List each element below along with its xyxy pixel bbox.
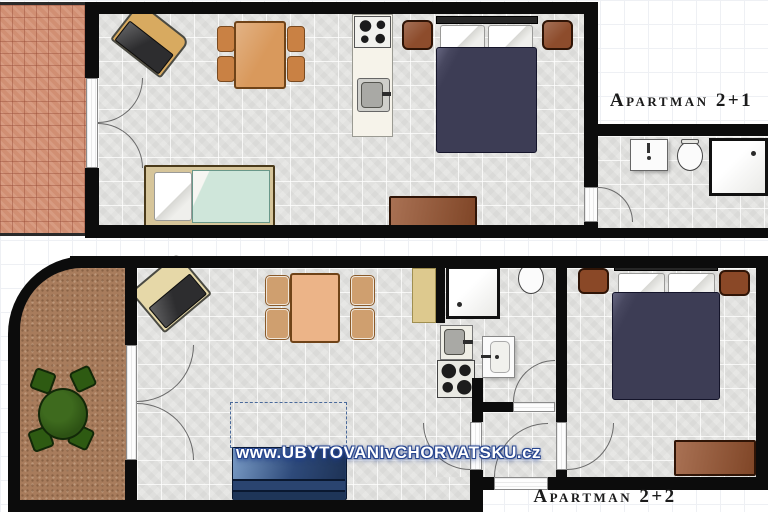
nightstand [542, 20, 573, 50]
garden-table [38, 388, 88, 440]
wall [70, 256, 768, 268]
sofa-fold [233, 479, 345, 490]
wall [470, 477, 494, 490]
wall [483, 402, 513, 412]
dining-chair [287, 26, 305, 52]
shower [709, 138, 768, 196]
double-bed [612, 262, 720, 402]
shower [446, 266, 500, 319]
faucet-knob [495, 355, 499, 359]
french-door [126, 345, 137, 460]
wall [85, 225, 598, 238]
sofa-bed-outline [230, 402, 347, 448]
floorplan-canvas: Apartman 2+1 [0, 0, 768, 512]
stove [437, 360, 475, 398]
faucet-icon [481, 355, 491, 358]
wall [125, 268, 137, 345]
nightstand [402, 20, 433, 50]
single-bed [144, 165, 275, 228]
wall [126, 500, 483, 512]
bathroom-door [584, 187, 598, 222]
wall [556, 470, 567, 482]
blanket [192, 170, 270, 223]
wall [85, 2, 99, 78]
faucet-icon [647, 143, 650, 153]
dining-chair [266, 309, 289, 339]
pillow [154, 172, 192, 221]
bed-duvet [612, 292, 720, 400]
toilet [677, 141, 703, 171]
wall [756, 268, 768, 477]
dining-table [290, 273, 340, 343]
bathroom-door [513, 402, 555, 412]
wash-basin [482, 336, 515, 378]
wall [85, 168, 99, 225]
dining-chair [287, 56, 305, 82]
bathroom-sink [630, 139, 668, 171]
apartment-2plus2-floorplan: Apartman 2+2 [0, 238, 768, 512]
stove [354, 16, 391, 48]
kitchen-sink [440, 325, 473, 360]
wall [556, 268, 567, 423]
dining-chair [217, 26, 235, 52]
toilet-tank [681, 139, 699, 144]
wall [85, 2, 598, 14]
nightstand [719, 270, 750, 296]
basin-bowl [490, 341, 510, 373]
dining-chair [351, 309, 374, 339]
sink-basin [361, 82, 383, 108]
dining-table [234, 21, 286, 89]
bed-duvet [436, 47, 537, 153]
faucet-icon [382, 92, 391, 96]
kitchen-sink [357, 78, 390, 112]
bed-headboard [436, 16, 538, 24]
watermark-text: www.UBYTOVANIvCHORVATSKU.cz [236, 443, 541, 463]
sink-basin [444, 329, 465, 355]
faucet-knob [647, 156, 651, 160]
dining-chair [266, 276, 289, 305]
bedroom-door [556, 422, 567, 470]
nightstand [578, 268, 609, 294]
wall [436, 268, 445, 323]
dresser [389, 196, 477, 227]
wall [598, 124, 768, 136]
apartment-label: Apartman 2+2 [505, 486, 705, 508]
terrace-floor [0, 2, 92, 236]
kitchen-cabinet [412, 268, 436, 323]
wall [472, 378, 483, 422]
double-bed [436, 16, 538, 154]
french-door [86, 78, 98, 168]
wall [598, 228, 768, 238]
dresser [674, 440, 756, 476]
apartment-2plus1-floorplan: Apartman 2+1 [0, 0, 768, 238]
wall [125, 460, 137, 500]
apartment-label: Apartman 2+1 [595, 90, 768, 112]
faucet-icon [463, 340, 473, 344]
dining-chair [351, 276, 374, 305]
dining-chair [217, 56, 235, 82]
shower-drain-icon [751, 151, 756, 156]
shower-drain-icon [457, 302, 462, 307]
